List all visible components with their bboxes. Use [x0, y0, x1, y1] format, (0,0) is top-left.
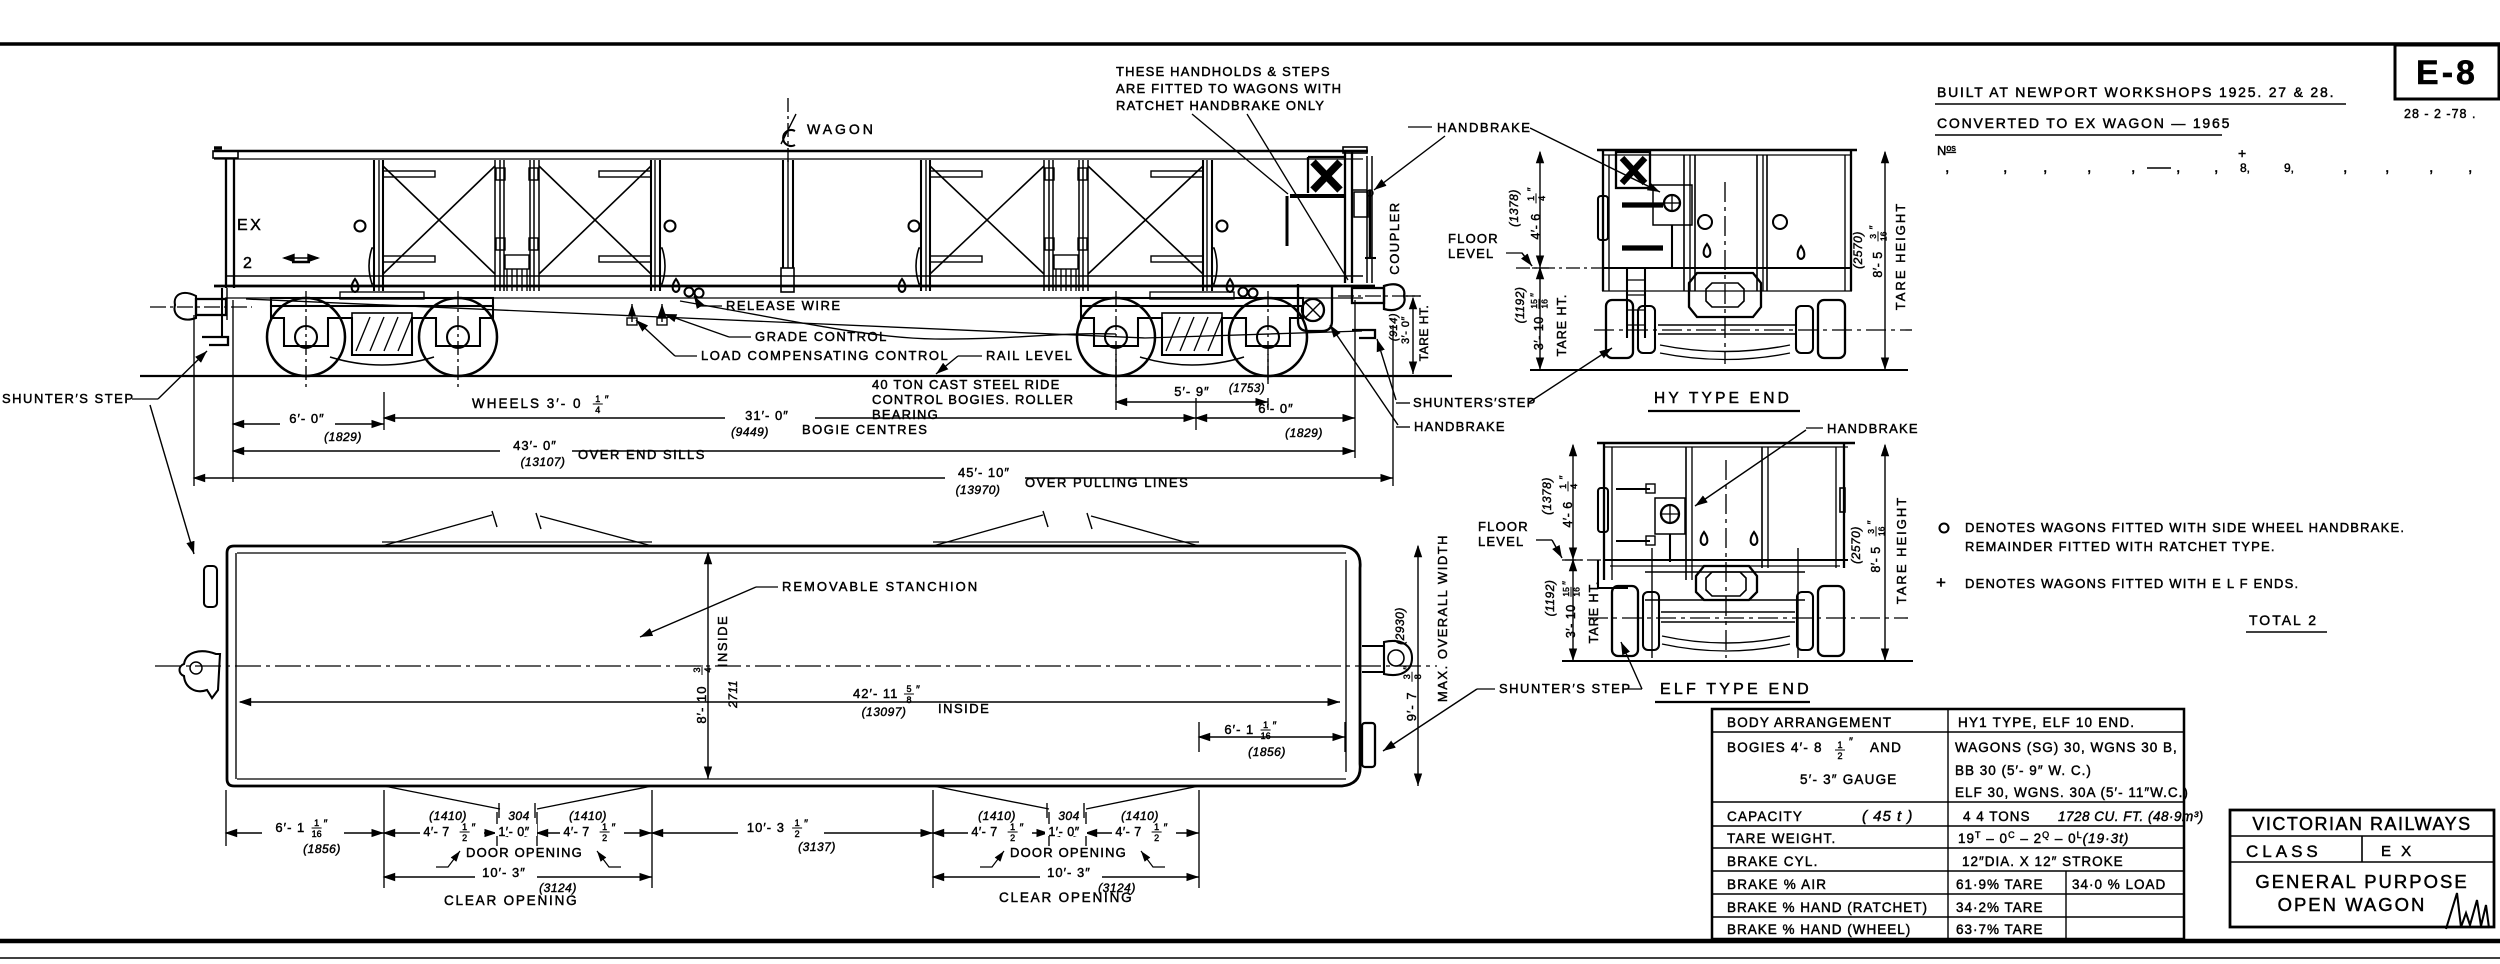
svg-text:2: 2 [602, 833, 607, 843]
svg-text:GRADE CONTROL: GRADE CONTROL [755, 329, 888, 344]
svg-text:WHEELS 3′- 0: WHEELS 3′- 0 [472, 396, 583, 411]
svg-text:304: 304 [508, 809, 530, 823]
svg-text:( 45 t ): ( 45 t ) [1862, 808, 1913, 825]
svg-text:1′- 0″: 1′- 0″ [1048, 825, 1079, 839]
svg-text:16: 16 [1572, 587, 1582, 597]
svg-text:,: , [2468, 159, 2472, 176]
svg-text:3: 3 [1402, 674, 1412, 679]
svg-text:4′- 7: 4′- 7 [971, 825, 997, 839]
svg-text:4: 4 [1569, 484, 1579, 489]
svg-text:ELF 30, WGNS. 30A (5′- 11″W.C: ELF 30, WGNS. 30A (5′- 11″W.C.) [1955, 785, 2189, 800]
svg-text:45′- 10″: 45′- 10″ [958, 465, 1010, 480]
svg-text:DOOR OPENING: DOOR OPENING [466, 845, 583, 860]
svg-text:9′- 7: 9′- 7 [1404, 691, 1419, 721]
svg-text:WAGONS (SG) 30, WGNS 30 B,: WAGONS (SG) 30, WGNS 30 B, [1955, 740, 2178, 755]
svg-text:8′- 10: 8′- 10 [694, 686, 709, 724]
svg-text:10′- 3″: 10′- 3″ [482, 865, 526, 880]
svg-text:BOGIE CENTRES: BOGIE CENTRES [802, 422, 928, 437]
svg-text:BRAKE % HAND (WHEEL): BRAKE % HAND (WHEEL) [1727, 922, 1911, 937]
svg-text:SHUNTER′S STEP: SHUNTER′S STEP [1499, 681, 1632, 696]
svg-text:3′- 10: 3′- 10 [1564, 604, 1578, 638]
svg-text:HANDBRAKE: HANDBRAKE [1827, 421, 1919, 436]
svg-text:MAX. OVERALL WIDTH: MAX. OVERALL WIDTH [1435, 534, 1450, 702]
svg-text:,: , [1945, 159, 1949, 176]
svg-text:BUILT AT NEWPORT WORKSHOPS: BUILT AT NEWPORT WORKSHOPS 1925. 27 & 28… [1937, 84, 2335, 100]
svg-text:EX: EX [237, 217, 263, 234]
svg-text:(1829): (1829) [1285, 426, 1323, 440]
svg-text:(1829): (1829) [324, 430, 362, 444]
svg-text:4: 4 [595, 405, 600, 415]
svg-text:(9449): (9449) [731, 425, 769, 439]
svg-text:LEVEL: LEVEL [1448, 246, 1494, 261]
svg-text:+: + [2238, 145, 2246, 161]
svg-text:HY TYPE END: HY TYPE END [1654, 390, 1792, 407]
svg-text:(3137): (3137) [798, 840, 836, 854]
svg-text:″: ″ [1561, 581, 1573, 585]
svg-text:(1410): (1410) [569, 809, 607, 823]
svg-text:(2570): (2570) [1849, 526, 1863, 564]
svg-text:2: 2 [1010, 833, 1015, 843]
svg-text:,: , [2429, 159, 2433, 176]
svg-text:5′- 3″ GAUGE: 5′- 3″ GAUGE [1800, 772, 1897, 787]
svg-text:3: 3 [692, 667, 702, 672]
svg-text:(1856): (1856) [1248, 745, 1286, 759]
svg-text:SHUNTER′S STEP: SHUNTER′S STEP [2, 391, 135, 406]
svg-text:43′- 0″: 43′- 0″ [513, 438, 557, 453]
svg-text:4′- 6: 4′- 6 [1529, 213, 1543, 239]
svg-text:CLEAR OPENING: CLEAR OPENING [444, 893, 578, 908]
svg-text:8′- 5: 8′- 5 [1871, 251, 1885, 277]
svg-text:3: 3 [1866, 529, 1876, 534]
svg-text:DENOTES WAGONS FITTED WITH: DENOTES WAGONS FITTED WITH E L F ENDS. [1965, 576, 2299, 591]
svg-text:ELF TYPE END: ELF TYPE END [1660, 681, 1812, 698]
svg-text:3: 3 [1868, 234, 1878, 239]
svg-text:BB 30 (5′- 9″ W. C.): BB 30 (5′- 9″ W. C.) [1955, 763, 2092, 778]
svg-text:2: 2 [1154, 833, 1159, 843]
svg-text:,: , [2087, 159, 2091, 176]
svg-text:″: ″ [1866, 520, 1878, 524]
svg-text:4 4 TONS: 4 4 TONS [1963, 809, 2031, 824]
svg-text:28 - 2 -78 .: 28 - 2 -78 . [2404, 107, 2476, 121]
svg-text:BEARING: BEARING [872, 407, 939, 422]
svg-text:1: 1 [602, 822, 607, 832]
svg-text:304: 304 [1058, 809, 1080, 823]
svg-text:(1192): (1192) [1543, 580, 1557, 617]
svg-text:″: ″ [1526, 187, 1538, 191]
svg-text:,: , [2176, 159, 2180, 176]
svg-text:HANDBRAKE: HANDBRAKE [1414, 419, 1506, 434]
svg-text:″: ″ [1558, 475, 1570, 479]
svg-text:34·0 % LOAD: 34·0 % LOAD [2072, 877, 2166, 892]
svg-text:2: 2 [243, 255, 254, 272]
svg-text:TARE HEIGHT: TARE HEIGHT [1894, 496, 1909, 604]
svg-text:(1378): (1378) [1540, 477, 1554, 515]
svg-text:RAIL LEVEL: RAIL LEVEL [986, 348, 1074, 363]
svg-text:12″DIA. X 12″ STROKE: 12″DIA. X 12″ STROKE [1962, 854, 2124, 869]
svg-text:(914): (914) [1388, 313, 1400, 341]
svg-text:(1410): (1410) [429, 809, 467, 823]
svg-text:4′- 7: 4′- 7 [423, 825, 449, 839]
svg-text:16: 16 [1261, 731, 1271, 741]
svg-text:8,: 8, [2240, 161, 2250, 175]
svg-text:TARE HT.: TARE HT. [1555, 294, 1569, 357]
svg-text:1: 1 [795, 818, 800, 828]
svg-text:BOGIES 4′- 8: BOGIES 4′- 8 [1727, 740, 1823, 755]
svg-text:AND: AND [1870, 740, 1902, 755]
svg-text:1: 1 [1526, 196, 1536, 201]
svg-text:16: 16 [1879, 231, 1889, 241]
svg-text:(1192): (1192) [1513, 287, 1527, 324]
svg-text:BRAKE CYL.: BRAKE CYL. [1727, 854, 1819, 869]
svg-text:6′- 1: 6′- 1 [1224, 722, 1254, 737]
svg-text:2711: 2711 [726, 680, 740, 709]
svg-text:6′- 1: 6′- 1 [275, 820, 305, 835]
svg-text:BRAKE % HAND (RATCHET): BRAKE % HAND (RATCHET) [1727, 900, 1928, 915]
svg-text:OVER END SILLS: OVER END SILLS [578, 447, 706, 462]
svg-text:(1410): (1410) [978, 809, 1016, 823]
svg-text:10′- 3: 10′- 3 [747, 820, 785, 835]
svg-text:CLEAR OPENING: CLEAR OPENING [999, 890, 1133, 905]
svg-text:8′- 5: 8′- 5 [1869, 546, 1883, 572]
svg-text:TARE WEIGHT.: TARE WEIGHT. [1727, 831, 1836, 846]
svg-text:3′- 10: 3′- 10 [1532, 316, 1546, 350]
svg-text:CLASS: CLASS [2246, 842, 2322, 861]
svg-text:1: 1 [462, 822, 467, 832]
svg-text:FLOOR: FLOOR [1478, 519, 1529, 534]
svg-text:″: ″ [1402, 666, 1414, 670]
svg-text:(13097): (13097) [862, 705, 907, 719]
svg-text:CONTROL BOGIES. ROLLER: CONTROL BOGIES. ROLLER [872, 392, 1074, 407]
svg-text:4: 4 [703, 667, 713, 672]
svg-text:1′- 0″: 1′- 0″ [498, 825, 529, 839]
svg-text:(1410): (1410) [1121, 809, 1159, 823]
svg-text:1: 1 [1010, 822, 1015, 832]
svg-text:COUPLER: COUPLER [1387, 201, 1402, 274]
svg-text:CAPACITY: CAPACITY [1727, 809, 1803, 824]
svg-text:4: 4 [1537, 196, 1547, 201]
svg-text:LOAD COMPENSATING CONTROL: LOAD COMPENSATING CONTROL [701, 348, 949, 363]
svg-text:WAGON: WAGON [807, 121, 876, 137]
svg-text:6′- 0″: 6′- 0″ [1258, 401, 1293, 416]
svg-text:1: 1 [1154, 822, 1159, 832]
svg-text:1: 1 [314, 818, 319, 828]
svg-text:TOTAL 2: TOTAL 2 [2249, 612, 2318, 628]
svg-text:(13970): (13970) [956, 483, 1001, 497]
svg-text:THESE HANDHOLDS & STEPS: THESE HANDHOLDS & STEPS [1116, 64, 1331, 79]
svg-text:″: ″ [472, 822, 476, 834]
svg-text:5: 5 [906, 684, 911, 694]
svg-text:(2930): (2930) [1393, 607, 1407, 645]
svg-text:34·2% TARE: 34·2% TARE [1956, 900, 2044, 915]
svg-text:″: ″ [612, 822, 616, 834]
svg-text:,: , [2131, 159, 2135, 176]
svg-text:1: 1 [1558, 484, 1568, 489]
svg-text:16: 16 [1540, 299, 1550, 309]
svg-text:TARE HEIGHT: TARE HEIGHT [1893, 202, 1908, 310]
svg-text:1: 1 [595, 394, 600, 404]
svg-text:+: + [1936, 573, 1946, 592]
svg-text:61·9% TARE: 61·9% TARE [1956, 877, 2044, 892]
svg-text:1: 1 [1263, 720, 1268, 730]
svg-text:2: 2 [1837, 751, 1842, 761]
svg-text:ARE FITTED TO WAGONS WITH: ARE FITTED TO WAGONS WITH [1116, 81, 1342, 96]
svg-text:31′- 0″: 31′- 0″ [745, 408, 789, 423]
svg-text:RELEASE WIRE: RELEASE WIRE [726, 298, 842, 313]
svg-text:8: 8 [906, 695, 911, 705]
svg-text:VICTORIAN RAILWAYS: VICTORIAN RAILWAYS [2252, 814, 2471, 834]
svg-text:(1378): (1378) [1507, 189, 1521, 227]
svg-text:INSIDE: INSIDE [938, 701, 990, 716]
svg-text:HANDBRAKE: HANDBRAKE [1437, 120, 1531, 135]
svg-text:(1856): (1856) [303, 842, 341, 856]
svg-text:4′- 7: 4′- 7 [1115, 825, 1141, 839]
svg-text:(2570): (2570) [1851, 231, 1865, 269]
svg-text:HY1 TYPE, ELF 10 END.: HY1 TYPE, ELF 10 END. [1958, 715, 2135, 730]
svg-text:4′- 6: 4′- 6 [1561, 501, 1575, 527]
svg-text:42′- 11: 42′- 11 [853, 686, 898, 701]
svg-text:E-8: E-8 [2416, 54, 2478, 92]
svg-text:,: , [2003, 159, 2007, 176]
svg-text:″: ″ [1849, 736, 1854, 748]
svg-text:DOOR OPENING: DOOR OPENING [1010, 845, 1127, 860]
svg-text:40 TON CAST STEEL RIDE: 40 TON CAST STEEL RIDE [872, 377, 1060, 392]
svg-text:5′- 9″: 5′- 9″ [1174, 384, 1209, 399]
svg-text:REMAINDER FITTED WITH RATCH: REMAINDER FITTED WITH RATCHET TYPE. [1965, 539, 2276, 554]
svg-text:SHUNTERS′STEP: SHUNTERS′STEP [1413, 395, 1537, 410]
svg-text:BODY ARRANGEMENT: BODY ARRANGEMENT [1727, 715, 1892, 730]
svg-text:″: ″ [1529, 293, 1541, 297]
svg-text:OVER PULLING LINES: OVER PULLING LINES [1025, 475, 1189, 490]
svg-text:(13107): (13107) [521, 455, 566, 469]
svg-text:GENERAL PURPOSE: GENERAL PURPOSE [2255, 871, 2468, 892]
svg-text:″: ″ [1164, 822, 1168, 834]
svg-text:16: 16 [312, 829, 322, 839]
svg-text:(1753): (1753) [1229, 383, 1265, 395]
svg-text:9,: 9, [2284, 161, 2294, 175]
svg-text:3′- 0″: 3′- 0″ [1400, 316, 1412, 344]
svg-text:BRAKE % AIR: BRAKE % AIR [1727, 877, 1827, 892]
svg-text:LEVEL: LEVEL [1478, 534, 1524, 549]
svg-text:15: 15 [1561, 587, 1571, 597]
svg-text:RATCHET HANDBRAKE ONLY: RATCHET HANDBRAKE ONLY [1116, 98, 1325, 113]
svg-text:16: 16 [1877, 526, 1887, 536]
svg-text:″: ″ [804, 818, 808, 830]
svg-text:,: , [2214, 159, 2218, 176]
svg-text:″: ″ [605, 394, 609, 406]
svg-text:″: ″ [324, 818, 328, 830]
svg-text:″: ″ [916, 684, 920, 696]
svg-text:63·7% TARE: 63·7% TARE [1956, 922, 2044, 937]
svg-text:OPEN WAGON: OPEN WAGON [2278, 894, 2427, 915]
svg-text:,: , [2343, 159, 2347, 176]
svg-text:2: 2 [795, 829, 800, 839]
svg-text:1: 1 [1837, 740, 1842, 750]
svg-text:DENOTES WAGONS FITTED WITH: DENOTES WAGONS FITTED WITH SIDE WHEEL HA… [1965, 520, 2405, 535]
svg-text:E X: E X [2381, 843, 2414, 860]
svg-text:″: ″ [1273, 720, 1277, 732]
svg-text:REMOVABLE STANCHION: REMOVABLE STANCHION [782, 579, 979, 594]
svg-text:6′- 0″: 6′- 0″ [289, 411, 324, 426]
svg-text:,: , [2043, 159, 2047, 176]
svg-text:8: 8 [1413, 674, 1423, 679]
svg-text:INSIDE: INSIDE [715, 615, 730, 667]
svg-text:″: ″ [1868, 225, 1880, 229]
svg-text:FLOOR: FLOOR [1448, 231, 1499, 246]
svg-text:CONVERTED TO EX WAGON — 1: CONVERTED TO EX WAGON — 1965 [1937, 115, 2231, 131]
svg-text:4′- 7: 4′- 7 [563, 825, 589, 839]
svg-text:″: ″ [1020, 822, 1024, 834]
svg-text:1728 CU. FT. (48·9m³): 1728 CU. FT. (48·9m³) [2058, 809, 2204, 824]
svg-text:TARE HT.: TARE HT. [1587, 581, 1601, 644]
svg-text:2: 2 [462, 833, 467, 843]
svg-text:15: 15 [1529, 299, 1539, 309]
svg-text:10′- 3″: 10′- 3″ [1047, 865, 1091, 880]
svg-text:,: , [2385, 159, 2389, 176]
svg-text:TARE HT.: TARE HT. [1417, 305, 1431, 361]
